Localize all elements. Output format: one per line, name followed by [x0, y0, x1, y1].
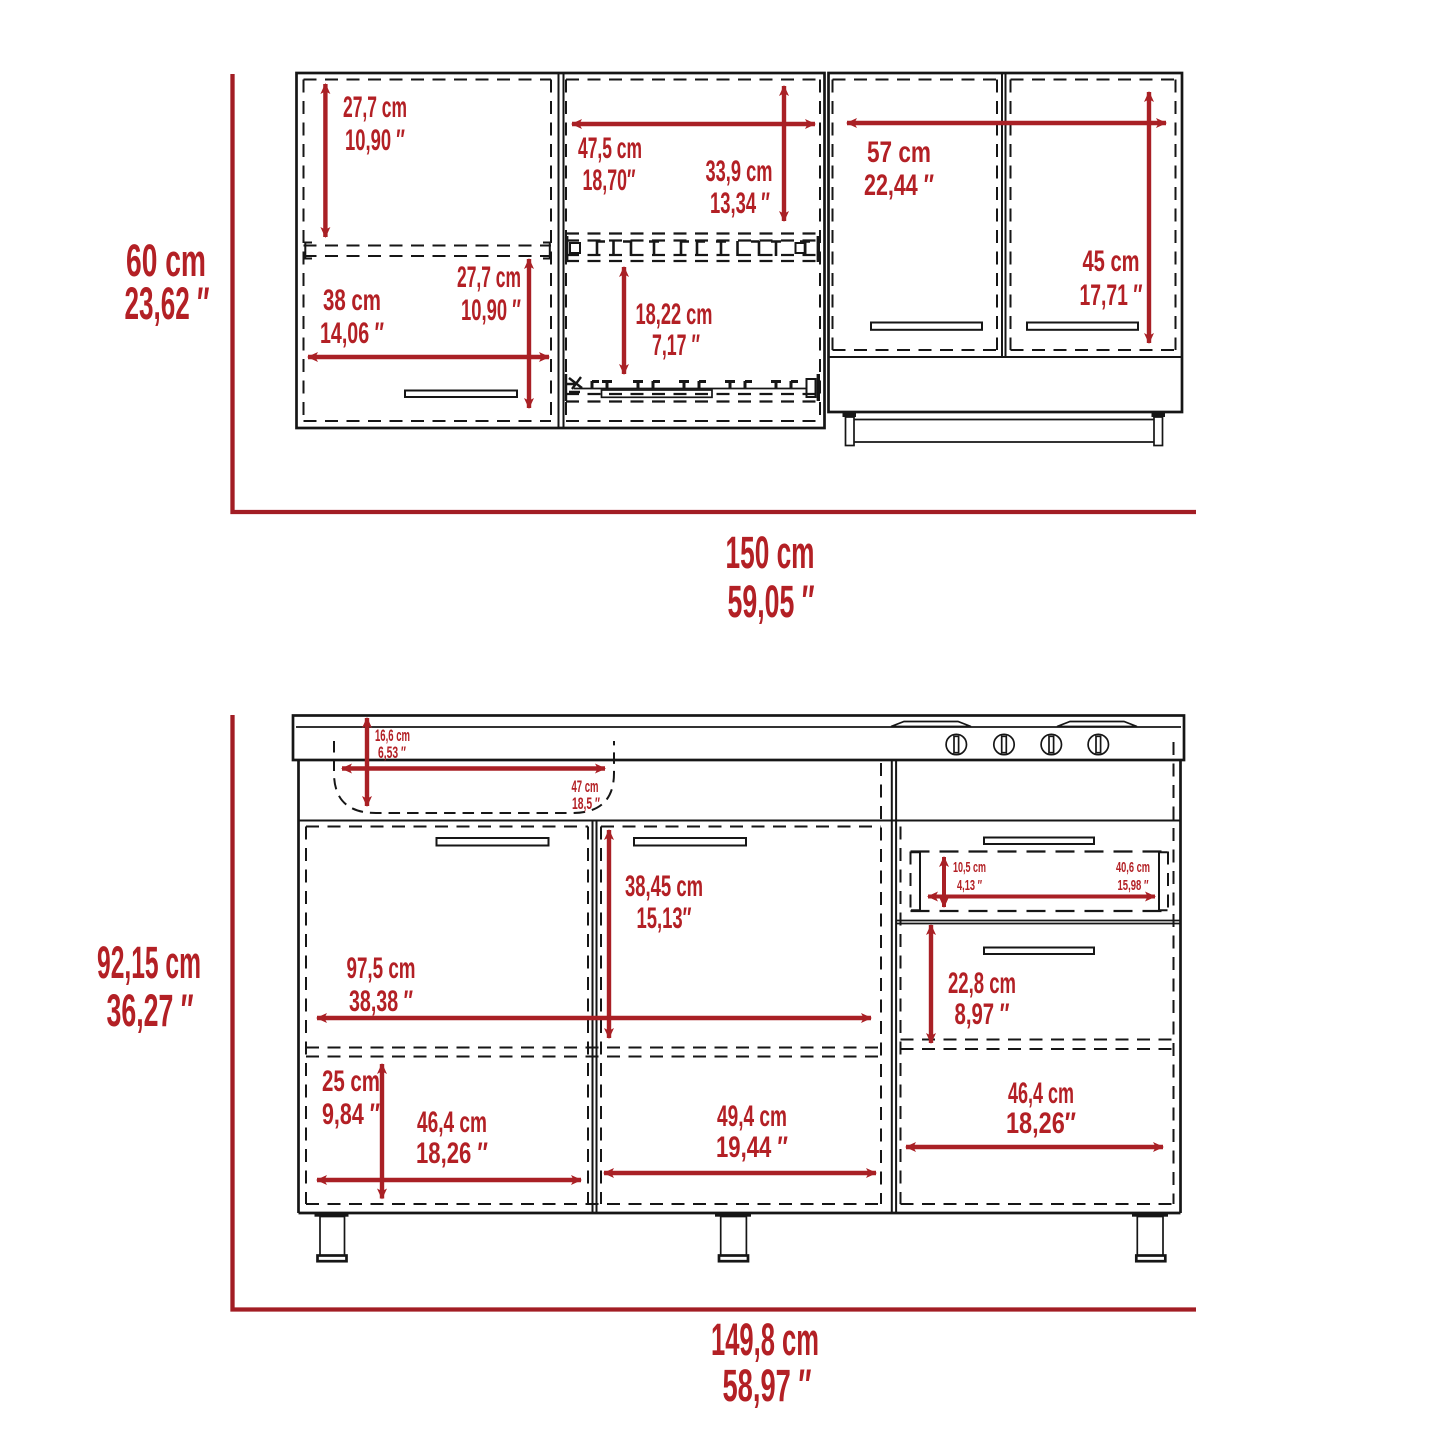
svg-text:150 cm: 150 cm — [726, 527, 815, 578]
svg-text:36,27 ″: 36,27 ″ — [107, 985, 194, 1036]
svg-text:14,06 ″: 14,06 ″ — [320, 317, 384, 350]
svg-text:16,6 cm: 16,6 cm — [375, 727, 410, 745]
svg-text:18,70″: 18,70″ — [583, 164, 636, 197]
svg-text:38,45 cm: 38,45 cm — [625, 870, 703, 903]
svg-text:92,15 cm: 92,15 cm — [97, 937, 201, 988]
svg-text:23,62 ″: 23,62 ″ — [125, 278, 210, 329]
svg-text:38 cm: 38 cm — [323, 284, 381, 317]
svg-text:40,6 cm: 40,6 cm — [1116, 859, 1150, 876]
svg-text:149,8 cm: 149,8 cm — [711, 1314, 819, 1365]
svg-text:17,71 ″: 17,71 ″ — [1080, 279, 1143, 312]
svg-text:22,8 cm: 22,8 cm — [948, 967, 1016, 1000]
svg-text:46,4 cm: 46,4 cm — [417, 1106, 487, 1139]
svg-text:58,97 ″: 58,97 ″ — [723, 1360, 812, 1411]
svg-text:47 cm: 47 cm — [572, 778, 599, 796]
svg-text:4,13 ″: 4,13 ″ — [957, 877, 982, 894]
svg-text:27,7 cm: 27,7 cm — [457, 261, 521, 294]
svg-text:13,34 ″: 13,34 ″ — [710, 187, 770, 220]
svg-text:59,05 ″: 59,05 ″ — [728, 576, 815, 627]
svg-text:19,44 ″: 19,44 ″ — [716, 1131, 788, 1164]
svg-text:33,9 cm: 33,9 cm — [706, 155, 773, 188]
svg-text:6,53 ″: 6,53 ″ — [378, 744, 406, 762]
svg-text:18,22 cm: 18,22 cm — [636, 298, 713, 331]
svg-text:27,7 cm: 27,7 cm — [343, 91, 407, 124]
svg-text:47,5 cm: 47,5 cm — [578, 132, 642, 165]
svg-text:8,97 ″: 8,97 ″ — [955, 998, 1010, 1031]
svg-text:45 cm: 45 cm — [1083, 245, 1140, 278]
svg-text:10,90 ″: 10,90 ″ — [461, 294, 521, 327]
svg-text:97,5 cm: 97,5 cm — [347, 952, 416, 985]
svg-text:7,17 ″: 7,17 ″ — [652, 329, 700, 362]
svg-text:25 cm: 25 cm — [322, 1065, 380, 1098]
svg-text:15,98 ″: 15,98 ″ — [1118, 877, 1149, 894]
svg-text:15,13″: 15,13″ — [637, 902, 692, 935]
svg-text:46,4 cm: 46,4 cm — [1008, 1077, 1074, 1110]
svg-text:22,44 ″: 22,44 ″ — [864, 169, 934, 202]
svg-text:10,5 cm: 10,5 cm — [953, 859, 986, 876]
svg-text:18,26 ″: 18,26 ″ — [416, 1137, 488, 1170]
svg-text:57 cm: 57 cm — [867, 136, 931, 169]
svg-text:9,84 ″: 9,84 ″ — [322, 1098, 380, 1131]
svg-text:49,4 cm: 49,4 cm — [717, 1100, 787, 1133]
svg-text:18,5 ″: 18,5 ″ — [572, 795, 600, 813]
svg-text:18,26″: 18,26″ — [1006, 1107, 1076, 1140]
svg-text:38,38 ″: 38,38 ″ — [349, 985, 413, 1018]
svg-text:10,90 ″: 10,90 ″ — [345, 124, 405, 157]
